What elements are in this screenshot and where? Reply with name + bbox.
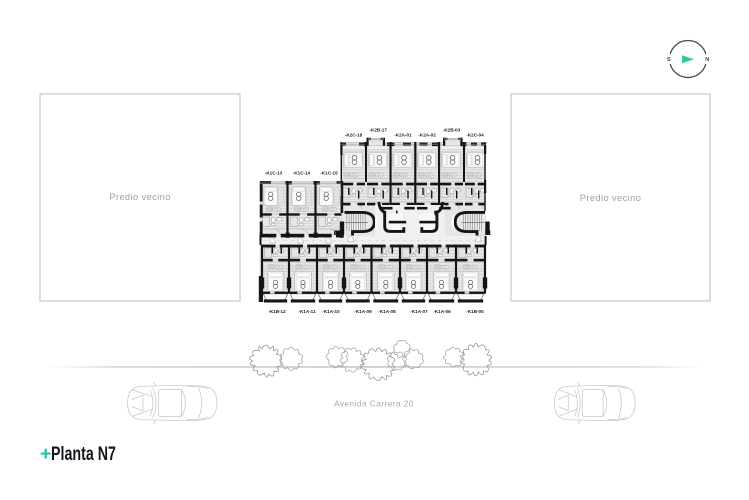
svg-text:-K1A-06: -K1A-06 [433, 309, 451, 314]
svg-text:+: + [40, 443, 51, 465]
svg-text:Predio vecino: Predio vecino [580, 193, 642, 203]
svg-text:-K1A-09: -K1A-09 [354, 309, 372, 314]
svg-text:-K1B-05: -K1B-05 [466, 309, 484, 314]
svg-text:-K2A-01: -K2A-01 [394, 133, 412, 138]
svg-text:-K1A-10: -K1A-10 [322, 309, 340, 314]
svg-text:S: S [667, 57, 671, 63]
svg-text:-K1C-15: -K1C-15 [320, 171, 338, 176]
svg-text:-K1A-07: -K1A-07 [410, 309, 428, 314]
svg-text:-K2C-04: -K2C-04 [466, 133, 484, 138]
svg-text:-K1C-14: -K1C-14 [293, 171, 311, 176]
svg-text:-K2A-02: -K2A-02 [418, 133, 436, 138]
svg-text:Avenida Carrera 20: Avenida Carrera 20 [334, 400, 414, 409]
svg-text:-K2B-03: -K2B-03 [443, 128, 461, 133]
svg-text:N: N [705, 57, 709, 63]
svg-text:Planta N7: Planta N7 [51, 443, 116, 465]
svg-text:Predio vecino: Predio vecino [109, 192, 171, 202]
svg-text:-K1B-12: -K1B-12 [268, 309, 286, 314]
svg-text:-K2C-18: -K2C-18 [345, 133, 363, 138]
svg-text:-K1A-11: -K1A-11 [298, 309, 316, 314]
svg-text:-K1A-08: -K1A-08 [378, 309, 396, 314]
svg-text:-K1C-13: -K1C-13 [265, 171, 283, 176]
svg-text:-K2B-17: -K2B-17 [370, 128, 388, 133]
